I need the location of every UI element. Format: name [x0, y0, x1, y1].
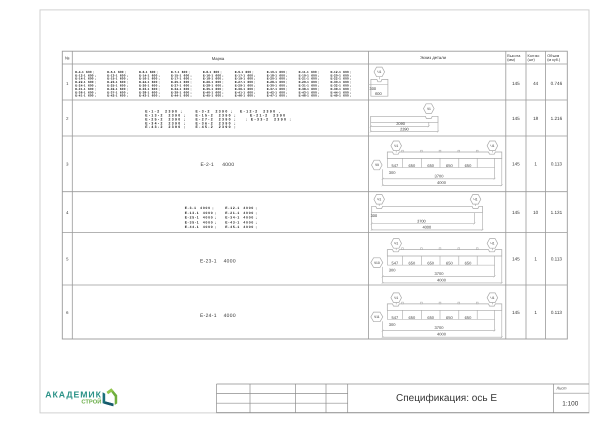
- svg-text:3700: 3700: [435, 271, 445, 276]
- svg-text:3700: 3700: [435, 173, 445, 178]
- svg-text:Е-6-1 600 ;Е-14-1 600 ;Е-16-: Е-6-1 600 ;Е-14-1 600 ;Е-16-1 600 ;Е-24-…: [139, 70, 160, 98]
- svg-text:Ч1: Ч1: [427, 107, 431, 111]
- svg-text:Е-7-1 600 ;Е-15-1 600 ;Е-17-: Е-7-1 600 ;Е-15-1 600 ;Е-17-1 600 ;Е-25-…: [171, 70, 192, 98]
- svg-text:Ч1: Ч1: [394, 144, 398, 148]
- svg-text:Марка: Марка: [212, 56, 225, 61]
- svg-text:: Е-33-2 2390 :: : Е-33-2 2390 :: [246, 117, 292, 121]
- svg-text:Е-3-1 4000 ;Е-13-1 4000 ;Е-2: Е-3-1 4000 ;Е-13-1 4000 ;Е-25-1 4000 ;Е-…: [185, 206, 217, 229]
- svg-text:650: 650: [427, 261, 434, 266]
- svg-text:Эскиз детали: Эскиз детали: [420, 55, 447, 60]
- svg-text:650: 650: [446, 315, 453, 320]
- svg-text:Ч9: Ч9: [375, 163, 379, 167]
- svg-text:145: 145: [512, 257, 520, 262]
- svg-text:2390: 2390: [400, 127, 409, 132]
- svg-text:Ч10: Ч10: [374, 261, 380, 265]
- svg-text:300: 300: [389, 170, 396, 175]
- svg-text:1: 1: [534, 257, 537, 262]
- svg-text:10: 10: [533, 210, 539, 215]
- svg-text:650: 650: [409, 315, 416, 320]
- svg-text:Лист: Лист: [556, 386, 568, 391]
- svg-text:Ч1: Ч1: [394, 242, 398, 246]
- svg-text:Е-24-1 4000: Е-24-1 4000: [200, 313, 236, 319]
- svg-text:145: 145: [512, 81, 520, 86]
- svg-text:Е-9-1 600 ;Е-17-1 600 ;Е-19-: Е-9-1 600 ;Е-17-1 600 ;Е-19-1 600 ;Е-27-…: [235, 70, 256, 98]
- svg-text:Ч1: Ч1: [490, 144, 494, 148]
- svg-text:3700: 3700: [417, 218, 426, 223]
- svg-text:0.113: 0.113: [551, 310, 563, 315]
- svg-text:4000: 4000: [437, 332, 447, 337]
- svg-text:Е-12-1 4000 ;Е-21-1 4000 ;Е-: Е-12-1 4000 ;Е-21-1 4000 ;Е-34-1 4000 ;Е…: [225, 206, 257, 229]
- svg-text:Е-2-1 4000: Е-2-1 4000: [201, 162, 235, 168]
- svg-text:1: 1: [534, 162, 537, 167]
- svg-text:2090: 2090: [396, 121, 405, 126]
- svg-text:Спецификация: ось Е: Спецификация: ось Е: [396, 393, 497, 404]
- svg-text:Ч1: Ч1: [490, 242, 494, 246]
- svg-text:Е-10-1 600 ;Е-18-1 600 ;Е-20: Е-10-1 600 ;Е-18-1 600 ;Е-20-1 600 ;Е-28…: [267, 70, 288, 98]
- svg-text:145: 145: [512, 116, 520, 121]
- svg-text:Е-8-1 600 ;Е-16-1 600 ;Е-18-: Е-8-1 600 ;Е-16-1 600 ;Е-18-1 600 ;Е-26-…: [203, 70, 224, 98]
- svg-text:1:100: 1:100: [562, 401, 578, 408]
- svg-text:Ч1: Ч1: [377, 198, 381, 202]
- svg-text:650: 650: [465, 315, 472, 320]
- svg-text:0.746: 0.746: [551, 81, 563, 86]
- svg-text:650: 650: [465, 163, 472, 168]
- svg-text:СТРОЙ: СТРОЙ: [81, 397, 101, 405]
- svg-text:18: 18: [533, 116, 539, 121]
- svg-text:145: 145: [512, 162, 520, 167]
- svg-text:АКАДЕМИК: АКАДЕМИК: [45, 390, 102, 400]
- svg-text:44: 44: [533, 81, 539, 86]
- svg-text:Е-11-1 600 ;Е-19-1 600 ;Е-21: Е-11-1 600 ;Е-19-1 600 ;Е-21-1 600 ;Е-29…: [299, 70, 320, 98]
- svg-text:600: 600: [375, 91, 382, 96]
- svg-text:(мм): (мм): [507, 58, 515, 62]
- svg-text:Ч1: Ч1: [490, 296, 494, 300]
- svg-text:1.131: 1.131: [551, 210, 563, 215]
- svg-text:№: №: [65, 56, 70, 61]
- svg-text:Ч1: Ч1: [473, 198, 477, 202]
- svg-text:Ч1: Ч1: [394, 296, 398, 300]
- svg-text:(м куб.): (м куб.): [547, 58, 561, 62]
- svg-text:300: 300: [370, 86, 377, 91]
- svg-text:4000: 4000: [437, 277, 447, 282]
- svg-text:Е-4-1 600 ;Е-12-1 600 ;Е-14-: Е-4-1 600 ;Е-12-1 600 ;Е-14-1 600 ;Е-22-…: [75, 70, 96, 98]
- svg-text:Е-5-1 600 ;Е-13-1 600 ;Е-15-: Е-5-1 600 ;Е-13-1 600 ;Е-15-1 600 ;Е-23-…: [107, 70, 128, 98]
- svg-text:4000: 4000: [422, 225, 431, 230]
- svg-text:Е-12-1 600 ;Е-20-1 600 ;Е-22: Е-12-1 600 ;Е-20-1 600 ;Е-22-1 600 ;Е-30…: [331, 70, 352, 98]
- svg-text:Е-3-2 2390 ;Е-15-2 2390 ;Е-2: Е-3-2 2390 ;Е-15-2 2390 ;Е-27-2 2390 ;Е-…: [196, 110, 237, 130]
- svg-text:650: 650: [446, 261, 453, 266]
- svg-text:300: 300: [389, 322, 396, 327]
- svg-text:547: 547: [392, 315, 399, 320]
- svg-text:145: 145: [512, 210, 520, 215]
- svg-text:4000: 4000: [437, 180, 447, 185]
- svg-text:650: 650: [427, 163, 434, 168]
- svg-text:Ч1: Ч1: [377, 70, 381, 74]
- svg-text:650: 650: [446, 163, 453, 168]
- svg-text:Е-1-2 2390 ;Е-13-2 2390 ;Е-2: Е-1-2 2390 ;Е-13-2 2390 ;Е-25-2 2390 ;Е-…: [145, 110, 186, 130]
- svg-text:300: 300: [389, 268, 396, 273]
- svg-text:1.216: 1.216: [551, 116, 563, 121]
- svg-text:Ч11: Ч11: [374, 315, 380, 319]
- svg-text:650: 650: [409, 163, 416, 168]
- svg-text:650: 650: [409, 261, 416, 266]
- svg-text:650: 650: [427, 315, 434, 320]
- svg-text:650: 650: [465, 261, 472, 266]
- svg-text:(шт): (шт): [528, 58, 536, 62]
- svg-text:0.113: 0.113: [551, 162, 563, 167]
- svg-text:0.113: 0.113: [551, 257, 563, 262]
- svg-text:3700: 3700: [435, 325, 445, 330]
- svg-text:Е-23-1 4000: Е-23-1 4000: [200, 258, 236, 264]
- svg-text:547: 547: [392, 163, 399, 168]
- svg-text:300: 300: [371, 213, 378, 218]
- svg-text:145: 145: [512, 310, 520, 315]
- svg-text:1: 1: [534, 310, 537, 315]
- svg-text:547: 547: [392, 261, 399, 266]
